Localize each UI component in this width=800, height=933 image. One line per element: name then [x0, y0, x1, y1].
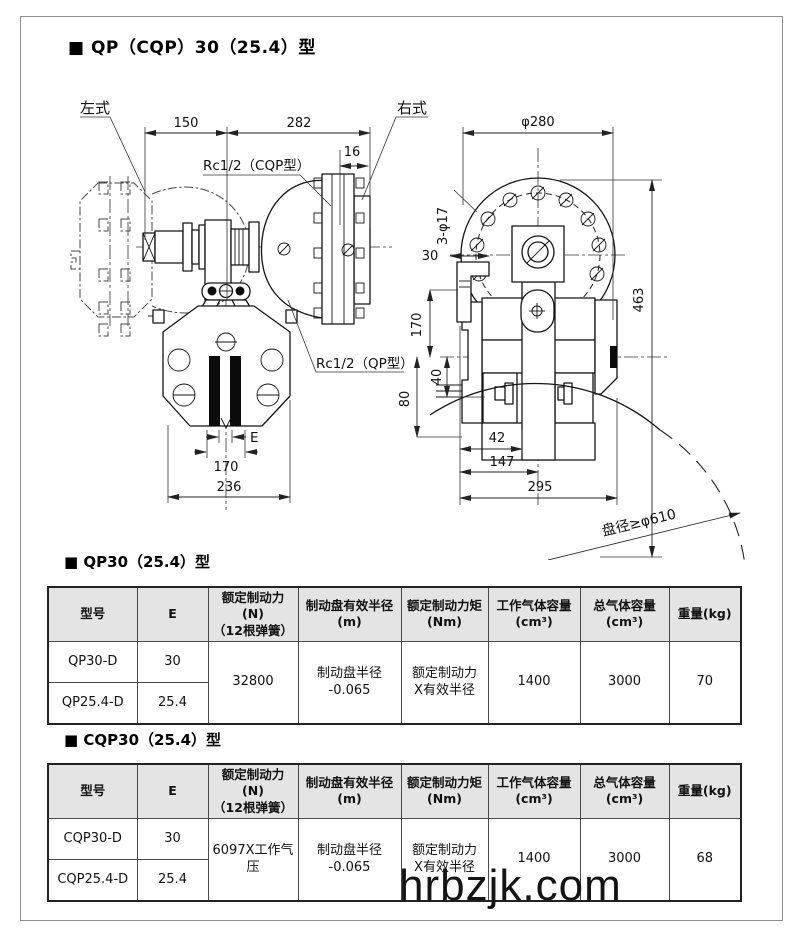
cell-radius: 制动盘半径 -0.065	[298, 641, 401, 724]
table-row: QP30-D 30 32800 制动盘半径 -0.065 额定制动力 X有效半径…	[48, 641, 741, 682]
dim-295: 295	[528, 480, 553, 495]
dim-147: 147	[490, 455, 515, 470]
cell-e: 25.4	[137, 859, 208, 901]
dim-282: 282	[287, 116, 312, 131]
label-rc-qp: Rc1/2（QP型）	[316, 356, 414, 372]
col-header-working-volume: 工作气体容量 (cm³)	[488, 587, 580, 641]
dim-236: 236	[217, 480, 242, 495]
label-disc-diameter: 盘径≥φ610	[600, 506, 678, 540]
cell-e: 25.4	[137, 682, 208, 724]
dim-150: 150	[174, 116, 199, 131]
cell-e: 30	[137, 818, 208, 859]
dim-80: 80	[398, 391, 413, 408]
col-header-model: 型号	[48, 764, 137, 818]
col-header-model: 型号	[48, 587, 137, 641]
spec-table-qp: 型号 E 额定制动力(N) （12根弹簧） 制动盘有效半径 (m) 额定制动力矩…	[47, 586, 742, 725]
dim-40: 40	[430, 369, 445, 386]
cell-total-volume: 3000	[580, 641, 669, 724]
left-view: 150 282 16 左式 右式 Rc1/2（CQP型） Rc1/2（QP型） …	[71, 99, 428, 510]
left-view-dimensions: 150 282 16 左式 右式 Rc1/2（CQP型） Rc1/2（QP型） …	[80, 99, 428, 503]
section-title-qp: ■ QP30（25.4）型	[64, 551, 210, 572]
cell-weight: 68	[669, 818, 741, 901]
dim-30: 30	[422, 249, 439, 264]
col-header-force: 额定制动力(N) （12根弹簧）	[208, 764, 298, 818]
brake-body	[436, 226, 617, 460]
table-row: CQP30-D 30 6097X工作气 压 制动盘半径 -0.065 额定制动力…	[48, 818, 741, 859]
technical-drawing: 150 282 16 左式 右式 Rc1/2（CQP型） Rc1/2（QP型） …	[0, 0, 800, 560]
cell-torque: 额定制动力 X有效半径	[401, 641, 488, 724]
cell-working-volume: 1400	[488, 641, 580, 724]
dim-16: 16	[344, 145, 361, 160]
col-header-radius: 制动盘有效半径 (m)	[298, 764, 401, 818]
label-left-type: 左式	[80, 99, 110, 117]
cell-model: CQP25.4-D	[48, 859, 137, 901]
cell-model: QP30-D	[48, 641, 137, 682]
dim-42: 42	[489, 431, 506, 446]
col-header-radius: 制动盘有效半径 (m)	[298, 587, 401, 641]
col-header-total-volume: 总气体容量 (cm³)	[580, 764, 669, 818]
watermark: hrbzjk.com	[399, 861, 622, 911]
caliper	[148, 306, 297, 428]
air-chamber	[262, 174, 370, 324]
cell-weight: 70	[669, 641, 741, 724]
col-header-total-volume: 总气体容量 (cm³)	[580, 587, 669, 641]
cell-e: 30	[137, 641, 208, 682]
col-header-weight: 重量(kg)	[669, 587, 741, 641]
dim-170-left: 170	[214, 460, 239, 475]
section-title-cqp: ■ CQP30（25.4）型	[64, 729, 221, 750]
dim-E: E	[250, 430, 259, 446]
col-header-working-volume: 工作气体容量 (cm³)	[488, 764, 580, 818]
cell-force: 32800	[208, 641, 298, 724]
col-header-torque: 额定制动力矩 (Nm)	[401, 587, 488, 641]
col-header-e: E	[137, 764, 208, 818]
col-header-weight: 重量(kg)	[669, 764, 741, 818]
dim-170-right: 170	[410, 313, 425, 338]
spec-table-cqp: 型号 E 额定制动力(N) （12根弹簧） 制动盘有效半径 (m) 额定制动力矩…	[47, 763, 742, 902]
label-bolt-holes: 3-φ17	[436, 207, 451, 245]
col-header-force: 额定制动力(N) （12根弹簧）	[208, 587, 298, 641]
right-view: φ280 3-φ17 463 30 170 40 80 42 14	[398, 115, 745, 560]
cell-model: QP25.4-D	[48, 682, 137, 724]
dim-463: 463	[632, 288, 647, 313]
label-rc-cqp: Rc1/2（CQP型）	[203, 158, 310, 174]
cell-force: 6097X工作气 压	[208, 818, 298, 901]
cell-model: CQP30-D	[48, 818, 137, 859]
col-header-torque: 额定制动力矩 (Nm)	[401, 764, 488, 818]
col-header-e: E	[137, 587, 208, 641]
dim-phi280: φ280	[521, 115, 554, 130]
label-right-type: 右式	[397, 99, 427, 117]
cell-radius: 制动盘半径 -0.065	[298, 818, 401, 901]
